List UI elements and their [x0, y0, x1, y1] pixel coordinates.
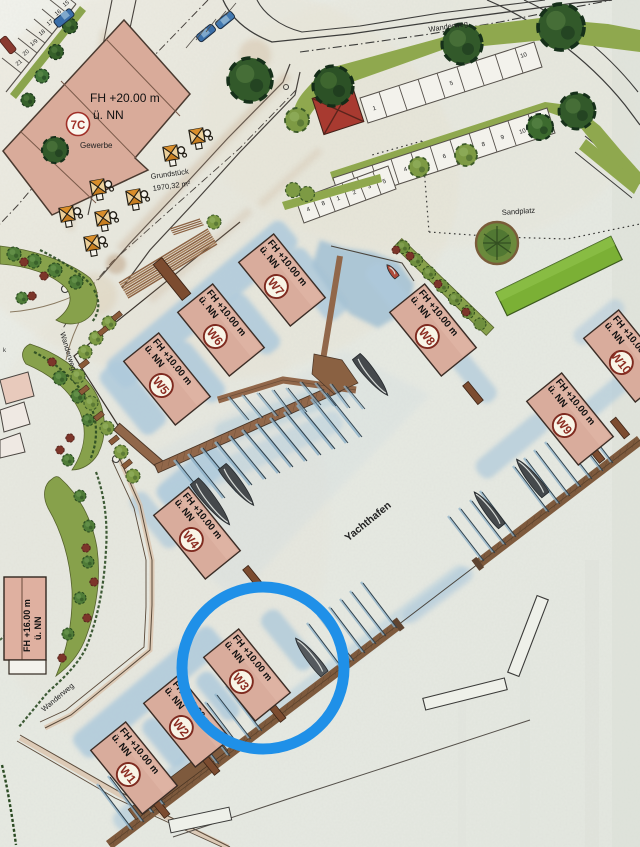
- svg-text:Gewerbe: Gewerbe: [80, 141, 113, 150]
- svg-text:7C: 7C: [71, 120, 86, 132]
- svg-text:FH +20.00 m: FH +20.00 m: [90, 91, 160, 105]
- svg-text:FH +16.00 m: FH +16.00 m: [22, 599, 32, 652]
- svg-text:ü. NN: ü. NN: [33, 617, 43, 641]
- svg-text:ü. NN: ü. NN: [93, 108, 124, 122]
